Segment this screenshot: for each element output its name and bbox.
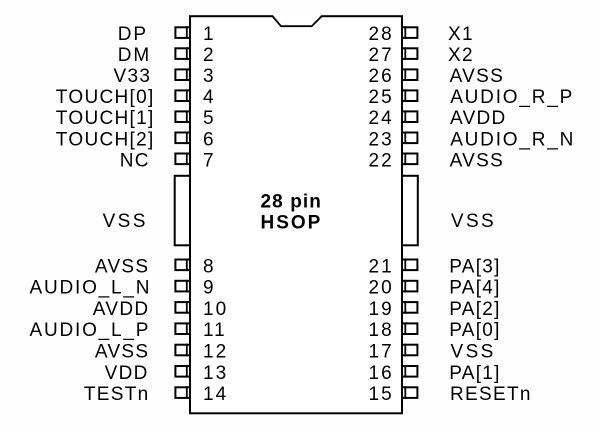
svg-text:AVSS: AVSS xyxy=(450,66,504,87)
svg-text:10: 10 xyxy=(203,299,228,320)
svg-text:24: 24 xyxy=(369,108,394,129)
svg-text:6: 6 xyxy=(203,129,216,150)
svg-text:8: 8 xyxy=(203,256,216,277)
svg-text:21: 21 xyxy=(369,256,394,277)
svg-text:PA[1]: PA[1] xyxy=(449,363,501,384)
svg-text:TOUCH[1]: TOUCH[1] xyxy=(56,108,155,129)
svg-text:28: 28 xyxy=(369,24,394,45)
svg-text:7: 7 xyxy=(203,150,216,171)
svg-text:17: 17 xyxy=(369,342,394,363)
svg-text:DM: DM xyxy=(118,45,151,66)
svg-text:AVSS: AVSS xyxy=(95,342,149,363)
svg-text:19: 19 xyxy=(369,299,394,320)
svg-text:20: 20 xyxy=(369,278,394,299)
svg-text:VSS: VSS xyxy=(451,342,496,363)
svg-text:DP: DP xyxy=(118,24,148,45)
svg-text:AUDIO_R_N: AUDIO_R_N xyxy=(450,129,575,150)
svg-text:9: 9 xyxy=(203,278,216,299)
svg-text:11: 11 xyxy=(203,320,227,341)
svg-text:18: 18 xyxy=(369,320,394,341)
svg-text:3: 3 xyxy=(203,66,216,87)
svg-text:PA[2]: PA[2] xyxy=(449,299,501,320)
svg-text:1: 1 xyxy=(203,24,216,45)
svg-text:13: 13 xyxy=(203,363,228,384)
svg-text:X1: X1 xyxy=(448,24,474,45)
svg-text:4: 4 xyxy=(203,87,216,108)
svg-text:AVDD: AVDD xyxy=(450,108,507,129)
svg-text:TESTn: TESTn xyxy=(84,384,150,405)
svg-text:HSOP: HSOP xyxy=(261,213,323,234)
svg-text:AVSS: AVSS xyxy=(450,150,504,171)
svg-text:AUDIO_L_P: AUDIO_L_P xyxy=(30,320,151,341)
svg-text:V33: V33 xyxy=(114,66,152,87)
svg-text:27: 27 xyxy=(369,45,394,66)
svg-text:5: 5 xyxy=(203,108,216,129)
svg-text:PA[4]: PA[4] xyxy=(449,278,501,299)
svg-text:TOUCH[0]: TOUCH[0] xyxy=(56,87,155,108)
svg-text:TOUCH[2]: TOUCH[2] xyxy=(56,129,155,150)
svg-text:AVSS: AVSS xyxy=(95,256,149,277)
svg-text:VDD: VDD xyxy=(105,363,149,384)
svg-text:AUDIO_R_P: AUDIO_R_P xyxy=(450,87,574,108)
svg-text:2: 2 xyxy=(203,45,216,66)
svg-text:AVDD: AVDD xyxy=(93,299,150,320)
svg-text:RESETn: RESETn xyxy=(450,384,532,405)
svg-text:12: 12 xyxy=(203,342,228,363)
svg-text:26: 26 xyxy=(369,66,394,87)
svg-text:23: 23 xyxy=(369,129,394,150)
svg-text:PA[0]: PA[0] xyxy=(449,320,501,341)
svg-text:AUDIO_L_N: AUDIO_L_N xyxy=(30,278,152,299)
svg-text:22: 22 xyxy=(369,150,394,171)
svg-text:15: 15 xyxy=(369,384,394,405)
svg-text:VSS: VSS xyxy=(103,211,148,232)
svg-text:14: 14 xyxy=(203,384,228,405)
svg-text:16: 16 xyxy=(369,363,394,384)
svg-text:X2: X2 xyxy=(448,45,474,66)
svg-text:NC: NC xyxy=(120,150,150,171)
svg-text:PA[3]: PA[3] xyxy=(449,256,501,277)
svg-text:VSS: VSS xyxy=(451,211,496,232)
svg-text:25: 25 xyxy=(369,87,394,108)
svg-text:28 pin: 28 pin xyxy=(261,192,323,213)
